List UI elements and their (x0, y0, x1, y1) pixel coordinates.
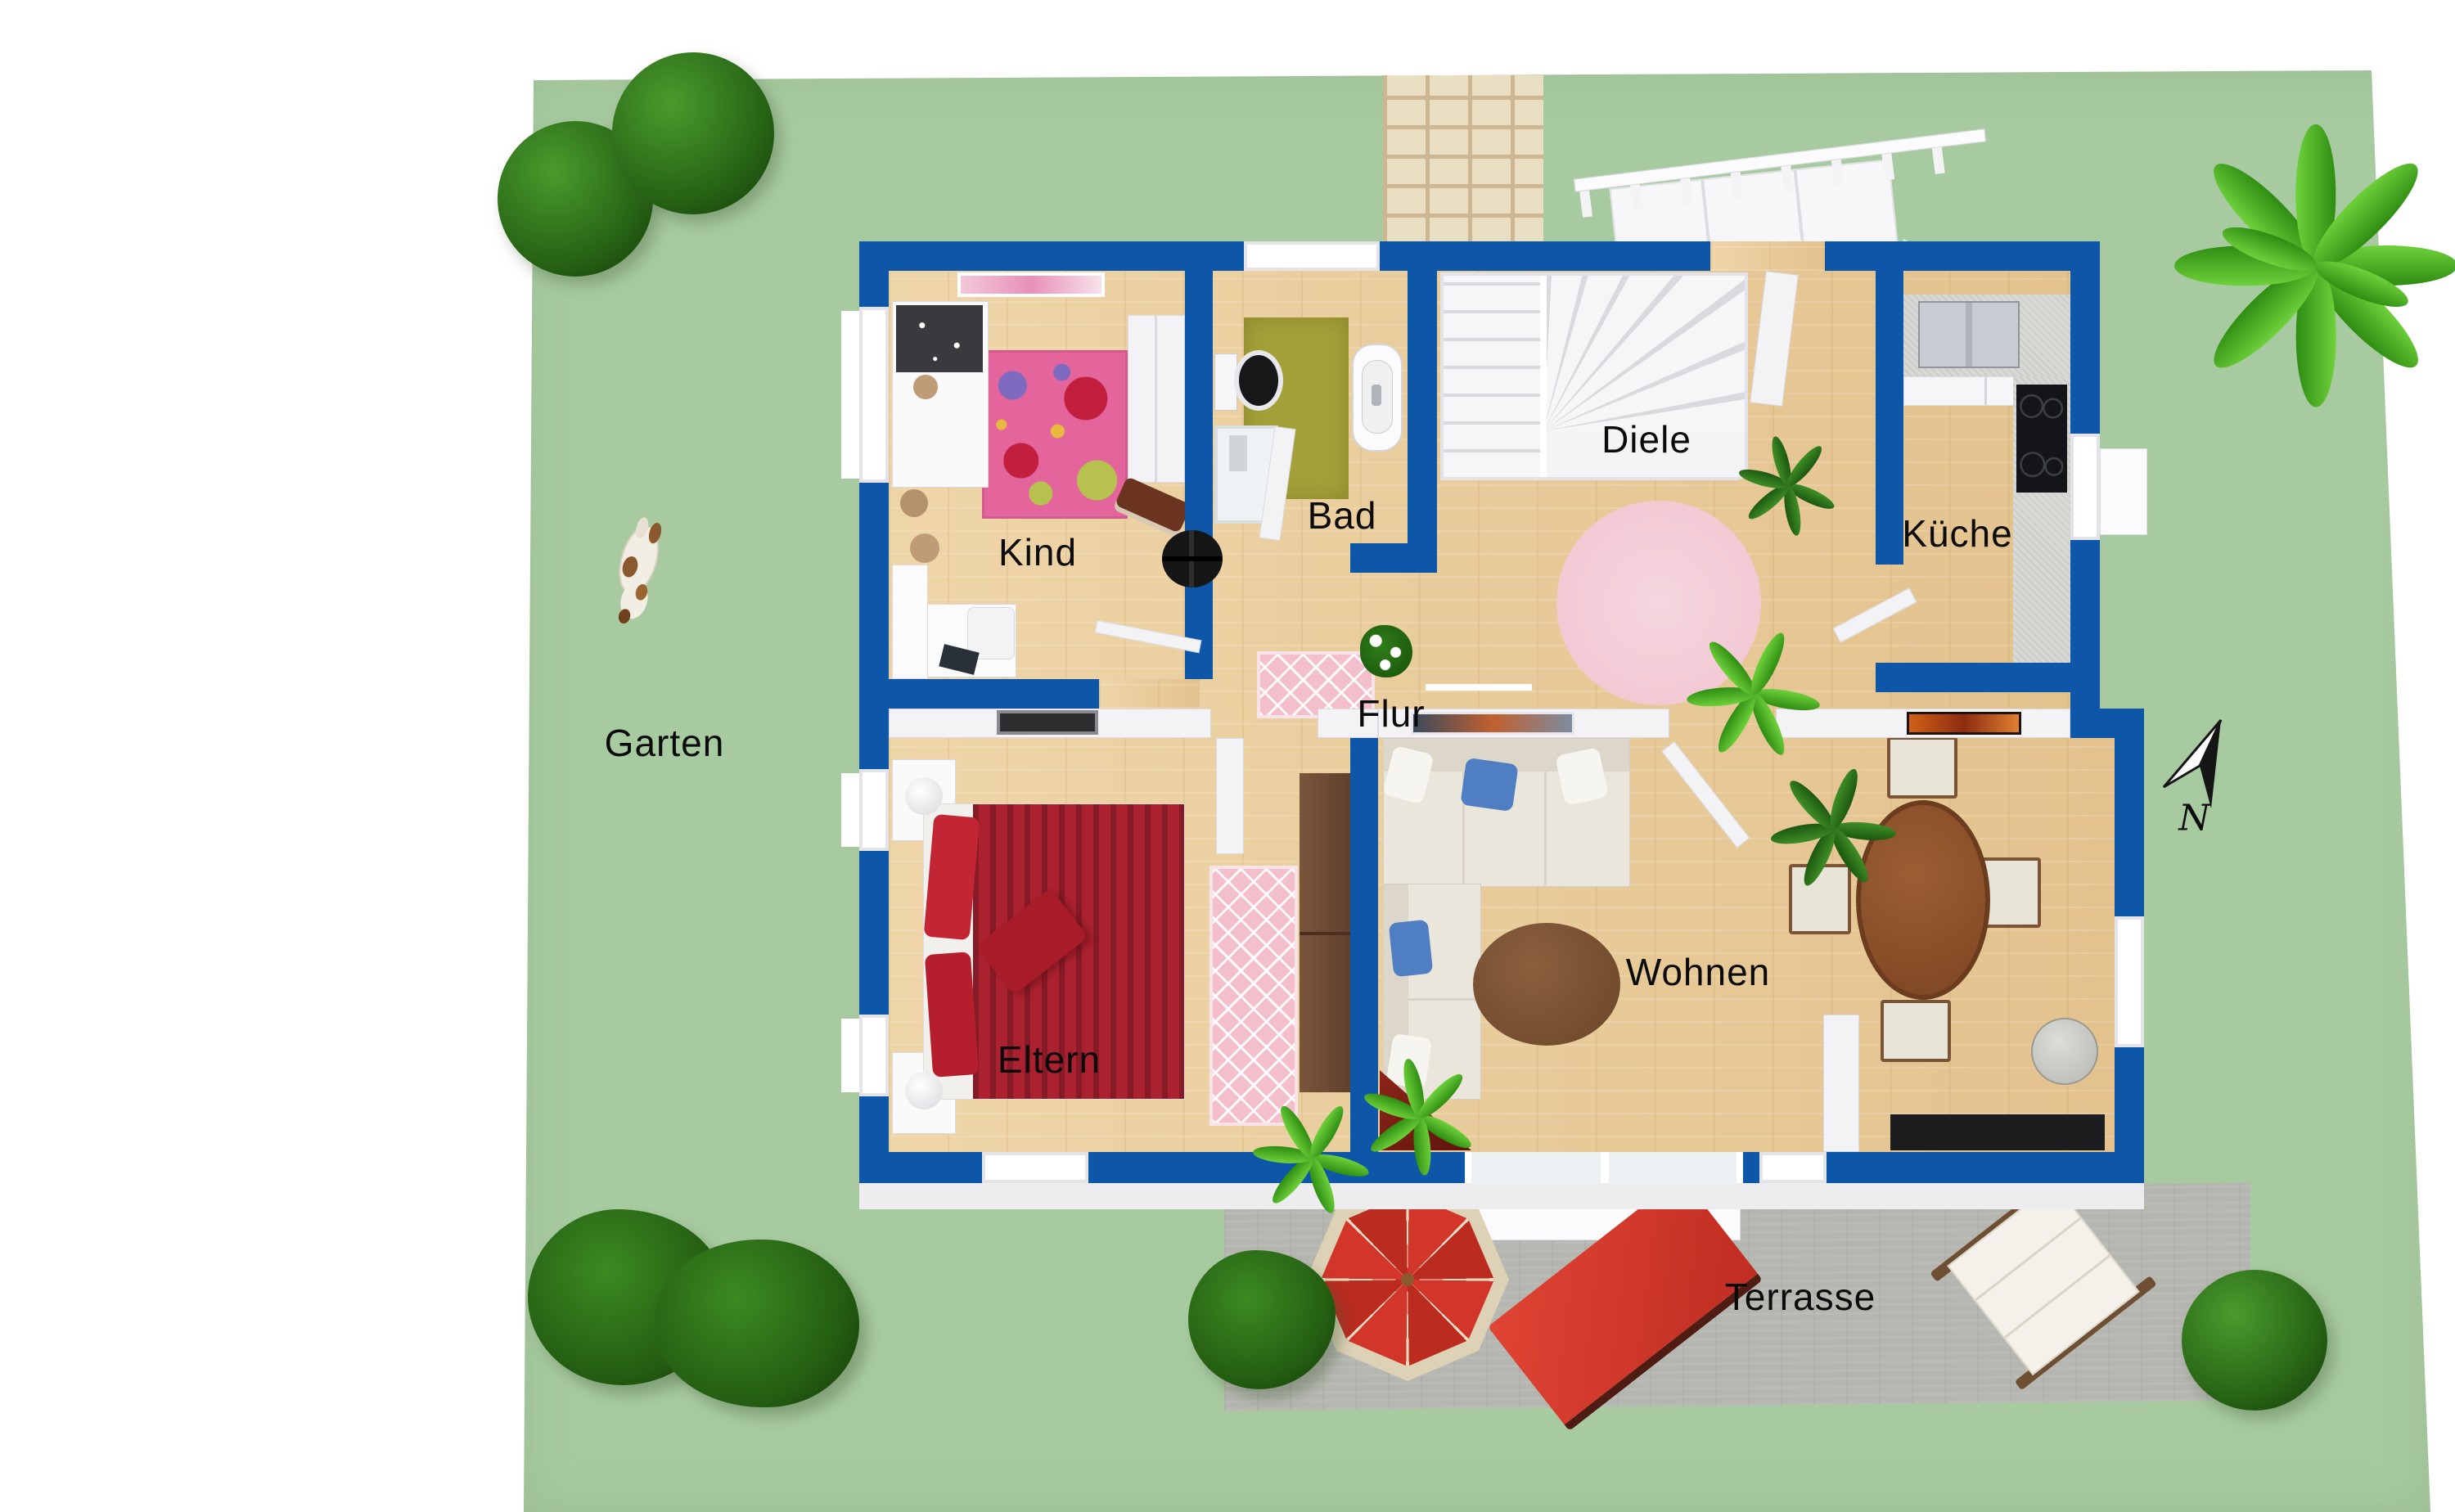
cooktop-icon (2016, 385, 2067, 493)
winder-staircase (1440, 272, 1748, 480)
wall-kueche-left (1876, 271, 1903, 565)
living-palm-icon (1358, 1047, 1481, 1170)
wall-kind-bad (1185, 271, 1213, 679)
teddy-bear-icon (913, 375, 938, 399)
room-label-wohnen: Wohnen (1626, 950, 1771, 994)
window-eltern-left-2 (859, 1015, 889, 1096)
wall-bad-diele (1408, 271, 1437, 573)
room-label-bad: Bad (1308, 493, 1377, 538)
topiary-tree-icon (612, 52, 774, 214)
parasol-pole (1401, 1273, 1414, 1286)
terrace-bush-icon (2182, 1270, 2327, 1411)
coffee-table (1473, 923, 1620, 1046)
wall-kueche-bottom (1876, 663, 2100, 692)
washbasin-icon (1352, 344, 1403, 452)
terrace-slider-door (1465, 1152, 1743, 1183)
house-plinth (859, 1183, 2144, 1209)
room-label-diele: Diele (1601, 417, 1691, 461)
bedroom-palm-icon (1250, 1088, 1373, 1211)
living-wall-picture (1411, 712, 1574, 735)
window-sill-left (841, 773, 859, 847)
radiator (1426, 684, 1532, 691)
foyer-plant-icon (1735, 425, 1841, 532)
window-sill-left (841, 311, 859, 479)
room-label-flur: Flur (1357, 691, 1425, 736)
window-wohnen-right (2115, 916, 2144, 1047)
fan-grate-icon (1162, 530, 1223, 587)
wall-bad-bottom-stub (1350, 543, 1437, 573)
bedroom-wall-picture (997, 710, 1098, 735)
side-stool (2031, 1018, 2098, 1085)
compass-north-label: N (2178, 798, 2211, 839)
bedroom-door-leaf (1216, 738, 1244, 854)
dining-wall-picture (1907, 712, 2021, 735)
terrace-door-leaf (1823, 1015, 1859, 1152)
bedroom-runner-rug (1209, 866, 1298, 1126)
table-lamp-icon (905, 1072, 943, 1109)
window-bad-top (1244, 241, 1380, 271)
foyer-palm-icon (1684, 615, 1823, 754)
window-kind-left (859, 307, 889, 483)
teddy-bear-icon (900, 489, 928, 517)
terrace-label: Terrasse (1725, 1275, 1876, 1319)
window-eltern-left-1 (859, 769, 889, 851)
window-sill-left (841, 1019, 859, 1092)
garden-dog-icon (593, 515, 683, 642)
garden-label: Garten (605, 721, 725, 765)
table-lamp-icon (905, 777, 943, 815)
orchid-plant-icon (1360, 625, 1412, 677)
kueche-outside-step (2100, 448, 2147, 535)
kids-flower-rug (982, 350, 1128, 519)
kids-wardrobe (1128, 315, 1185, 483)
kids-bed (892, 301, 989, 488)
sofa-pillow-blue (1460, 758, 1518, 812)
room-label-kueche: Küche (1902, 511, 2012, 556)
window-eltern-bottom (982, 1152, 1088, 1183)
door-gap-kind (1099, 679, 1200, 709)
wall-top (859, 241, 2100, 271)
bedroom-wardrobe (1300, 773, 1350, 1092)
kids-wall-art (957, 272, 1105, 297)
tv-board (1890, 1114, 2105, 1150)
kitchen-sink-icon (1918, 301, 2020, 368)
dining-chair (1881, 1000, 1951, 1062)
room-label-eltern: Eltern (998, 1037, 1101, 1082)
terrace-door-gap (1759, 1152, 1827, 1183)
window-kueche-right (2070, 434, 2100, 540)
kids-desk-return (892, 565, 928, 679)
garden-bush-icon (655, 1240, 859, 1407)
door-gap-entrance (1710, 241, 1825, 271)
wall-extension-top (2070, 709, 2144, 738)
sofa-pillow-blue (1389, 920, 1434, 978)
teddy-bear-icon (910, 533, 939, 563)
room-label-kind: Kind (998, 530, 1077, 574)
palm-shrub-icon (2169, 90, 2455, 401)
toilet-seat (1234, 350, 1283, 411)
living-plant-icon (1768, 754, 1899, 885)
floor-plan-scene: N Garten Terrasse (0, 0, 2455, 1512)
